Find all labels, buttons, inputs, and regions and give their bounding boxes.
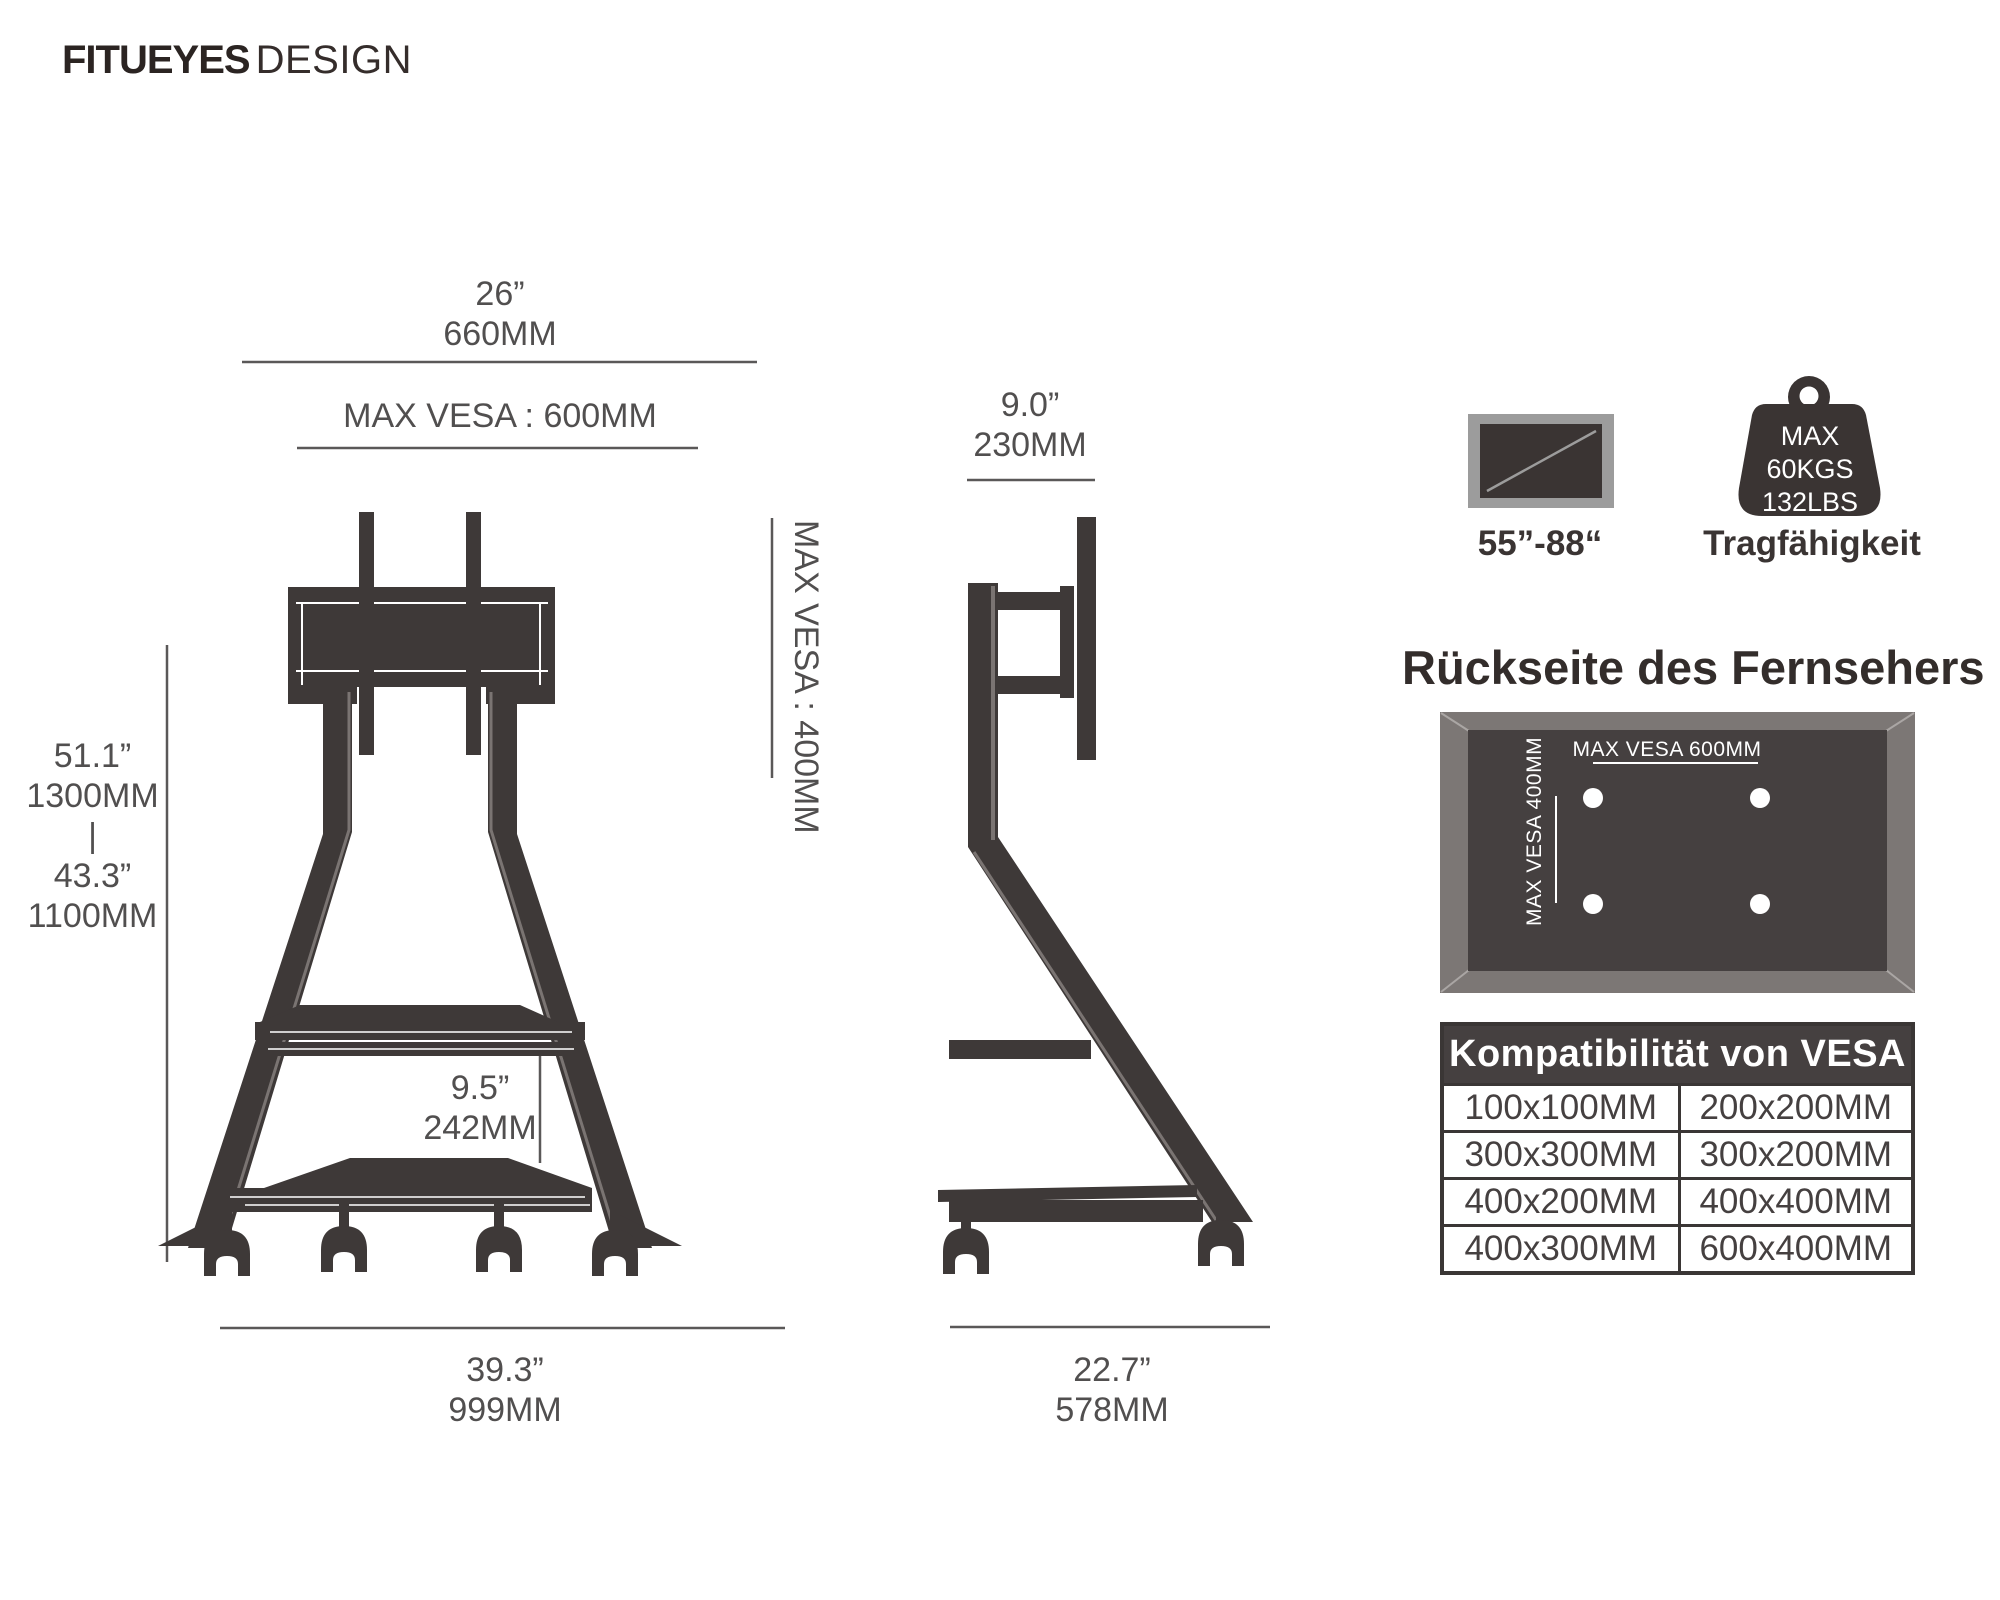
capacity-label: Tragfähigkeit <box>1692 524 1932 564</box>
panel-h-label: MAX VESA 600MM <box>1567 738 1767 762</box>
front-height-max-mm: 1300MM <box>10 776 175 816</box>
vesa-table-header: Kompatibilität von VESA <box>1444 1026 1911 1083</box>
vesa-cell: 300x300MM <box>1444 1130 1678 1177</box>
front-height-min-in: 43.3” <box>10 856 175 896</box>
front-bottom-shelf <box>218 1158 592 1212</box>
weight-lbs: 132LBS <box>1730 486 1890 519</box>
tv-size-range-text: 55”-88“ <box>1478 524 1603 563</box>
side-tv-bar <box>1077 517 1096 760</box>
front-base-width-in: 39.3” <box>385 1350 625 1390</box>
front-top-width-in: 26” <box>380 274 620 314</box>
side-bracket-arms <box>998 586 1074 698</box>
front-max-vesa-height-label: MAX VESA : 400MM <box>788 520 824 776</box>
tv-back-title-text: Rückseite des Fernsehers <box>1402 641 1985 694</box>
front-shelf-gap-in: 9.5” <box>400 1068 560 1108</box>
front-height-range-dim: 51.1” 1300MM | 43.3” 1100MM <box>10 736 175 936</box>
side-depth-dim: 9.0” 230MM <box>910 385 1150 465</box>
front-top-width-mm: 660MM <box>380 314 620 354</box>
front-shelf-gap-dim: 9.5” 242MM <box>400 1068 560 1148</box>
front-base-width-mm: 999MM <box>385 1390 625 1430</box>
tv-size-icon <box>1468 414 1614 508</box>
front-vesa-bar-right <box>466 512 481 755</box>
front-height-separator: | <box>10 816 175 856</box>
front-casters <box>204 1204 638 1276</box>
front-middle-shelf <box>255 1005 585 1056</box>
brand-name: FITUEYES <box>62 38 250 82</box>
side-base-depth-mm: 578MM <box>992 1390 1232 1430</box>
front-max-vesa-width: MAX VESA : 600MM <box>290 396 710 436</box>
panel-v-label-text: MAX VESA 400MM <box>1523 737 1546 926</box>
panel-v-label: MAX VESA 400MM <box>1523 776 1547 926</box>
front-base-width-dim: 39.3” 999MM <box>385 1350 625 1430</box>
weight-capacity-text: MAX 60KGS 132LBS <box>1730 420 1890 519</box>
vesa-cell: 400x200MM <box>1444 1177 1678 1224</box>
vesa-cell: 400x400MM <box>1678 1177 1912 1224</box>
side-base-depth-in: 22.7” <box>992 1350 1232 1390</box>
front-leg-left <box>188 687 352 1248</box>
side-base-bar <box>949 1200 1203 1222</box>
side-depth-in: 9.0” <box>910 385 1150 425</box>
tv-size-range-label: 55”-88“ <box>1440 524 1640 564</box>
side-view-drawing <box>938 480 1270 1327</box>
side-base-plate <box>938 1185 1197 1202</box>
spec-sheet: FITUEYESDESIGN 26” 660MM MAX VESA : 600M… <box>0 0 2000 1600</box>
front-vesa-bar-left <box>359 512 374 755</box>
vesa-compatibility-table: Kompatibilität von VESA 100x100MM 200x20… <box>1440 1022 1915 1275</box>
front-max-vesa-width-label: MAX VESA : 600MM <box>290 396 710 436</box>
brand-suffix: DESIGN <box>256 38 412 82</box>
front-height-min-mm: 1100MM <box>10 896 175 936</box>
panel-h-label-text: MAX VESA 600MM <box>1572 738 1761 761</box>
front-shelf-gap-mm: 242MM <box>400 1108 560 1148</box>
side-base-depth-dim: 22.7” 578MM <box>992 1350 1232 1430</box>
tv-back-title: Rückseite des Fernsehers <box>1402 640 1950 695</box>
front-height-max-in: 51.1” <box>10 736 175 776</box>
vesa-cell: 400x300MM <box>1444 1224 1678 1271</box>
weight-kgs: 60KGS <box>1730 453 1890 486</box>
vesa-cell: 200x200MM <box>1678 1083 1912 1130</box>
vesa-table-grid: 100x100MM 200x200MM 300x300MM 300x200MM … <box>1444 1083 1911 1271</box>
vesa-cell: 600x400MM <box>1678 1224 1912 1271</box>
side-middle-shelf <box>949 1040 1091 1059</box>
front-view-drawing <box>158 362 785 1328</box>
vesa-cell: 100x100MM <box>1444 1083 1678 1130</box>
front-top-width-dim: 26” 660MM <box>380 274 620 354</box>
side-depth-mm: 230MM <box>910 425 1150 465</box>
brand-logo: FITUEYESDESIGN <box>62 38 412 83</box>
capacity-label-text: Tragfähigkeit <box>1703 524 1921 563</box>
vesa-cell: 300x200MM <box>1678 1130 1912 1177</box>
front-max-vesa-height: MAX VESA : 400MM <box>788 520 824 776</box>
weight-max: MAX <box>1730 420 1890 453</box>
